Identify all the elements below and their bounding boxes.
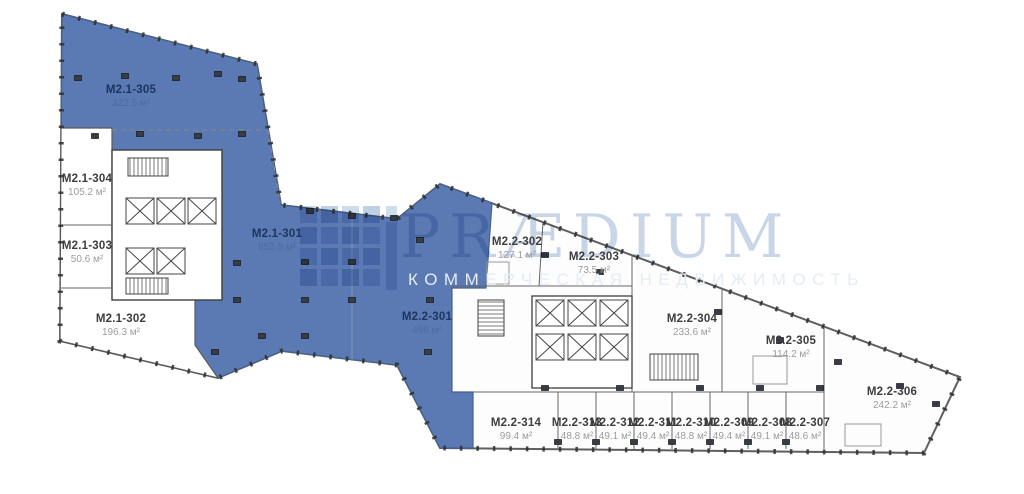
unit-label-m21-301[interactable]: M2.1-301853.8 м²: [252, 228, 302, 254]
unit-number: M2.2-307: [780, 417, 830, 430]
unit-label-m22-306[interactable]: M2.2-306242.2 м²: [867, 386, 917, 412]
unit-area: 853.8 м²: [252, 242, 302, 254]
unit-label-m22-303[interactable]: M2.2-30373.5 м²: [569, 251, 619, 277]
unit-number: M2.1-304: [62, 173, 112, 186]
unit-label-m22-305[interactable]: M2.2-305114.2 м²: [766, 335, 816, 361]
unit-area: 127.1 м²: [492, 250, 542, 262]
unit-area: 233.6 м²: [667, 327, 717, 339]
unit-area: 50.6 м²: [62, 254, 112, 266]
unit-label-m22-307[interactable]: M2.2-30748.6 м²: [780, 417, 830, 443]
unit-number: M2.2-314: [491, 417, 541, 430]
unit-label-m21-304[interactable]: M2.1-304105.2 м²: [62, 173, 112, 199]
unit-number: M2.2-304: [667, 313, 717, 326]
unit-label-m22-314[interactable]: M2.2-31499.4 м²: [491, 417, 541, 443]
unit-label-m22-302[interactable]: M2.2-302127.1 м²: [492, 236, 542, 262]
floor-plan: PRÆDIUM КОММЕРЧЕСКАЯ НЕДВИЖИМОСТЬ M2.1-3…: [0, 0, 1024, 494]
unit-number: M2.2-305: [766, 335, 816, 348]
unit-label-m21-302[interactable]: M2.1-302196.3 м²: [96, 313, 146, 339]
unit-area: 496 м²: [402, 325, 452, 337]
unit-label-m21-305[interactable]: M2.1-305322.5 м²: [106, 84, 156, 110]
unit-area: 114.2 м²: [766, 349, 816, 361]
unit-number: M2.2-303: [569, 251, 619, 264]
unit-area: 105.2 м²: [62, 187, 112, 199]
unit-area: 99.4 м²: [491, 431, 541, 443]
unit-label-m21-303[interactable]: M2.1-30350.6 м²: [62, 240, 112, 266]
unit-area: 242.2 м²: [867, 400, 917, 412]
unit-area: 322.5 м²: [106, 98, 156, 110]
unit-number: M2.1-303: [62, 240, 112, 253]
unit-area: 196.3 м²: [96, 327, 146, 339]
unit-number: M2.2-302: [492, 236, 542, 249]
unit-number: M2.2-306: [867, 386, 917, 399]
unit-number: M2.2-301: [402, 311, 452, 324]
unit-number: M2.1-302: [96, 313, 146, 326]
unit-number: M2.1-301: [252, 228, 302, 241]
unit-area: 73.5 м²: [569, 265, 619, 277]
unit-label-m22-304[interactable]: M2.2-304233.6 м²: [667, 313, 717, 339]
unit-label-m22-301[interactable]: M2.2-301496 м²: [402, 311, 452, 337]
unit-number: M2.1-305: [106, 84, 156, 97]
unit-area: 48.6 м²: [780, 431, 830, 443]
